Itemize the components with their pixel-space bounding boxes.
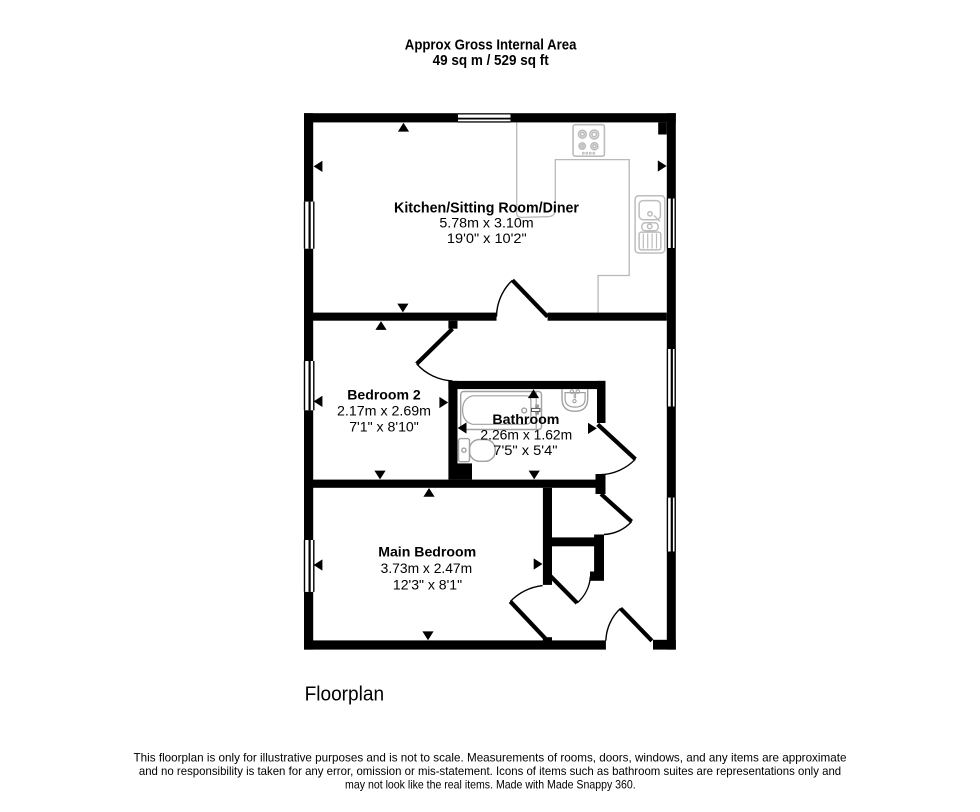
svg-text:Kitchen/Sitting Room/Diner: Kitchen/Sitting Room/Diner <box>394 199 579 216</box>
svg-text:7'5" x 5'4": 7'5" x 5'4" <box>493 443 557 459</box>
svg-text:Bedroom 2: Bedroom 2 <box>347 388 421 404</box>
svg-text:2.17m x 2.69m: 2.17m x 2.69m <box>337 403 431 419</box>
svg-text:49 sq m / 529 sq ft: 49 sq m / 529 sq ft <box>433 53 549 69</box>
svg-text:19'0" x 10'2": 19'0" x 10'2" <box>447 231 527 247</box>
svg-text:Floorplan: Floorplan <box>305 683 385 705</box>
svg-text:5.78m x 3.10m: 5.78m x 3.10m <box>439 216 533 232</box>
svg-text:Bathroom: Bathroom <box>492 412 559 428</box>
svg-text:2.26m x 1.62m: 2.26m x 1.62m <box>480 428 572 444</box>
svg-text:Approx Gross Internal Area: Approx Gross Internal Area <box>405 37 577 53</box>
svg-text:3.73m x 2.47m: 3.73m x 2.47m <box>381 561 473 577</box>
svg-text:may not look like the real ite: may not look like the real items. Made w… <box>345 779 636 792</box>
svg-text:7'1" x 8'10": 7'1" x 8'10" <box>349 420 419 436</box>
svg-text:This floorplan is only for ill: This floorplan is only for illustrative … <box>134 752 847 765</box>
svg-text:Main Bedroom: Main Bedroom <box>378 544 476 560</box>
svg-text:and no responsibility is taken: and no responsibility is taken for any e… <box>139 765 841 778</box>
svg-text:12'3" x 8'1": 12'3" x 8'1" <box>393 577 462 593</box>
